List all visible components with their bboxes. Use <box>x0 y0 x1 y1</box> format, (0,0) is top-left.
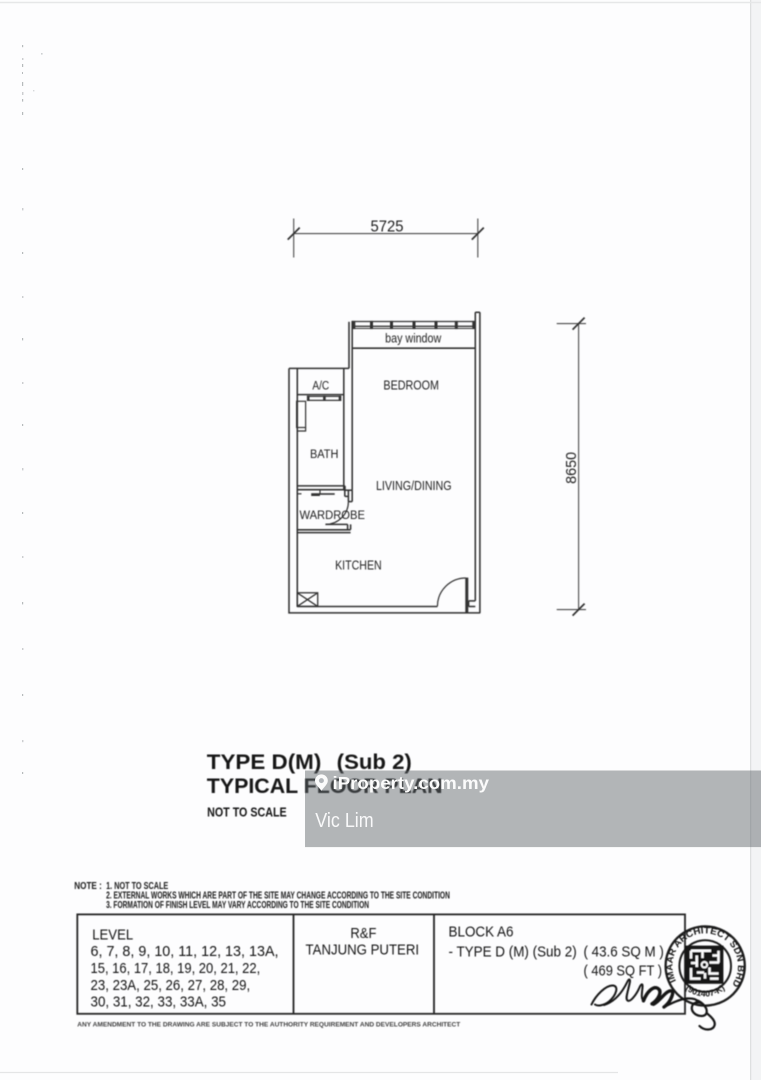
svg-text:TYPE D(M): TYPE D(M) <box>207 751 321 774</box>
svg-text:R&F: R&F <box>350 926 376 942</box>
svg-text:LIVING/DINING: LIVING/DINING <box>376 478 452 493</box>
svg-text:WARDROBE: WARDROBE <box>299 510 365 522</box>
svg-text:( 43.6 SQ M ): ( 43.6 SQ M ) <box>584 944 664 961</box>
svg-text:23, 23A, 25, 26, 27, 28, 29,: 23, 23A, 25, 26, 27, 28, 29, <box>91 977 251 994</box>
svg-text:8650: 8650 <box>564 452 580 484</box>
svg-text:6, 7, 8, 9, 10, 11, 12, 13, 13: 6, 7, 8, 9, 10, 11, 12, 13, 13A, <box>91 943 279 960</box>
svg-text:bay window: bay window <box>385 331 441 346</box>
svg-text:- TYPE D (M) (Sub 2): - TYPE D (M) (Sub 2) <box>449 944 577 961</box>
svg-text:NOTE :: NOTE : <box>74 881 102 892</box>
svg-text:KITCHEN: KITCHEN <box>335 559 382 573</box>
svg-text:Vic Lim: Vic Lim <box>315 810 373 832</box>
svg-text:15, 16, 17, 18, 19, 20, 21, 22: 15, 16, 17, 18, 19, 20, 21, 22, <box>91 960 261 977</box>
svg-text:BATH: BATH <box>310 447 338 461</box>
svg-text:(Sub 2): (Sub 2) <box>337 751 412 774</box>
svg-text:iProperty.com.my: iProperty.com.my <box>333 773 490 793</box>
svg-text:LEVEL: LEVEL <box>92 928 133 944</box>
svg-text:NOT TO SCALE: NOT TO SCALE <box>207 805 287 820</box>
svg-text:TANJUNG PUTERI: TANJUNG PUTERI <box>306 942 420 958</box>
svg-text:3. FORMATION OF FINISH LEVEL M: 3. FORMATION OF FINISH LEVEL MAY VARY AC… <box>106 900 369 911</box>
svg-text:BEDROOM: BEDROOM <box>383 378 439 393</box>
svg-text:30, 31, 32, 33, 33A, 35: 30, 31, 32, 33, 33A, 35 <box>91 994 227 1011</box>
svg-text:( 469 SQ FT ): ( 469 SQ FT ) <box>584 962 663 979</box>
svg-text:ANY AMENDMENT TO THE DRAWING A: ANY AMENDMENT TO THE DRAWING ARE SUBJECT… <box>77 1021 461 1028</box>
svg-text:BLOCK A6: BLOCK A6 <box>449 924 514 941</box>
svg-text:A/C: A/C <box>312 379 329 393</box>
svg-text:5725: 5725 <box>371 218 404 235</box>
